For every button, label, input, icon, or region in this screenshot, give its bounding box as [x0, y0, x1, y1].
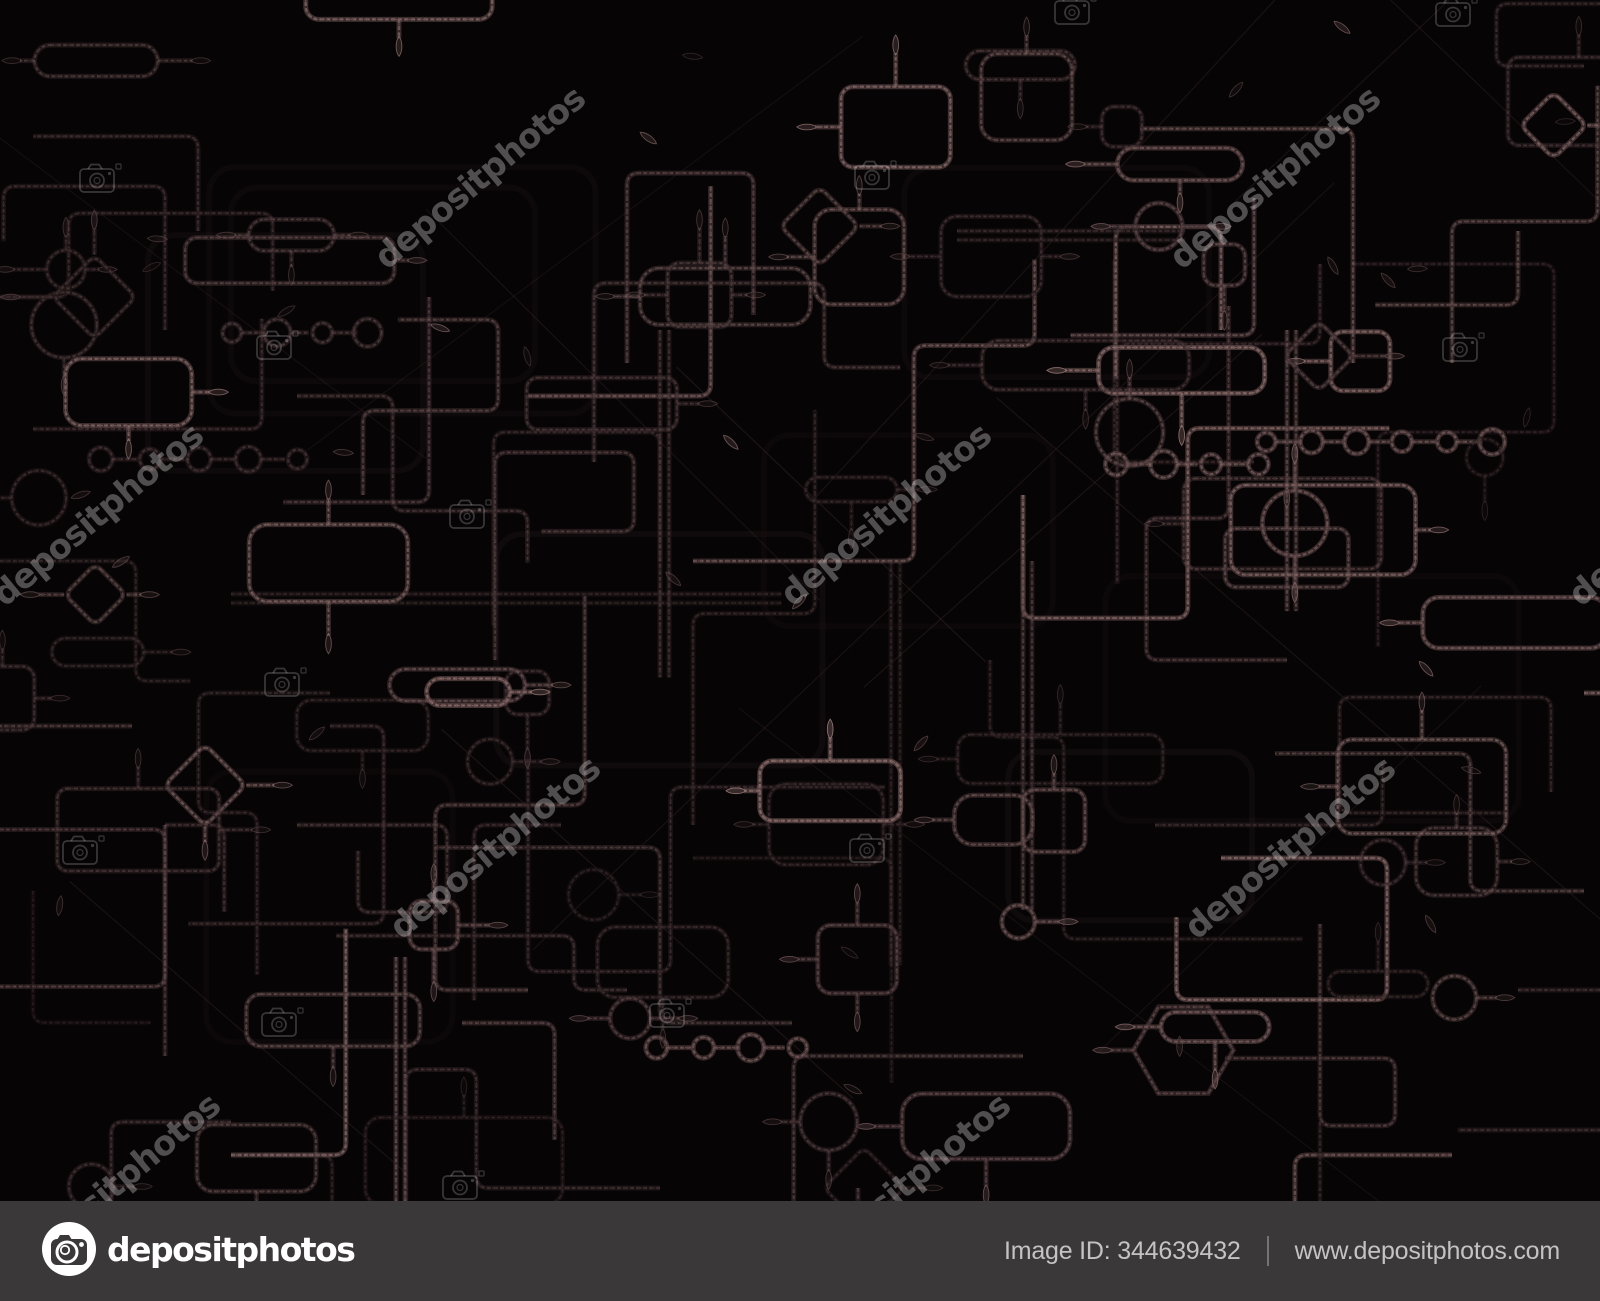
stock-photo-preview: depositphotosdepositphotosdepositphotosd… — [0, 0, 1600, 1301]
logo-wordmark: depositphotos — [107, 1230, 354, 1269]
depositphotos-logo: depositphotos — [40, 1220, 354, 1282]
camera-logo-icon — [40, 1220, 98, 1282]
footer-divider — [1267, 1236, 1269, 1266]
flowchart-pattern-art — [0, 0, 1600, 1205]
website-label: www.depositphotos.com — [1295, 1237, 1560, 1266]
footer-info: Image ID: 344639432 www.depositphotos.co… — [1004, 1236, 1560, 1266]
image-id-label: Image ID: 344639432 — [1004, 1237, 1241, 1266]
footer-bar: depositphotos Image ID: 344639432 www.de… — [0, 1201, 1600, 1301]
